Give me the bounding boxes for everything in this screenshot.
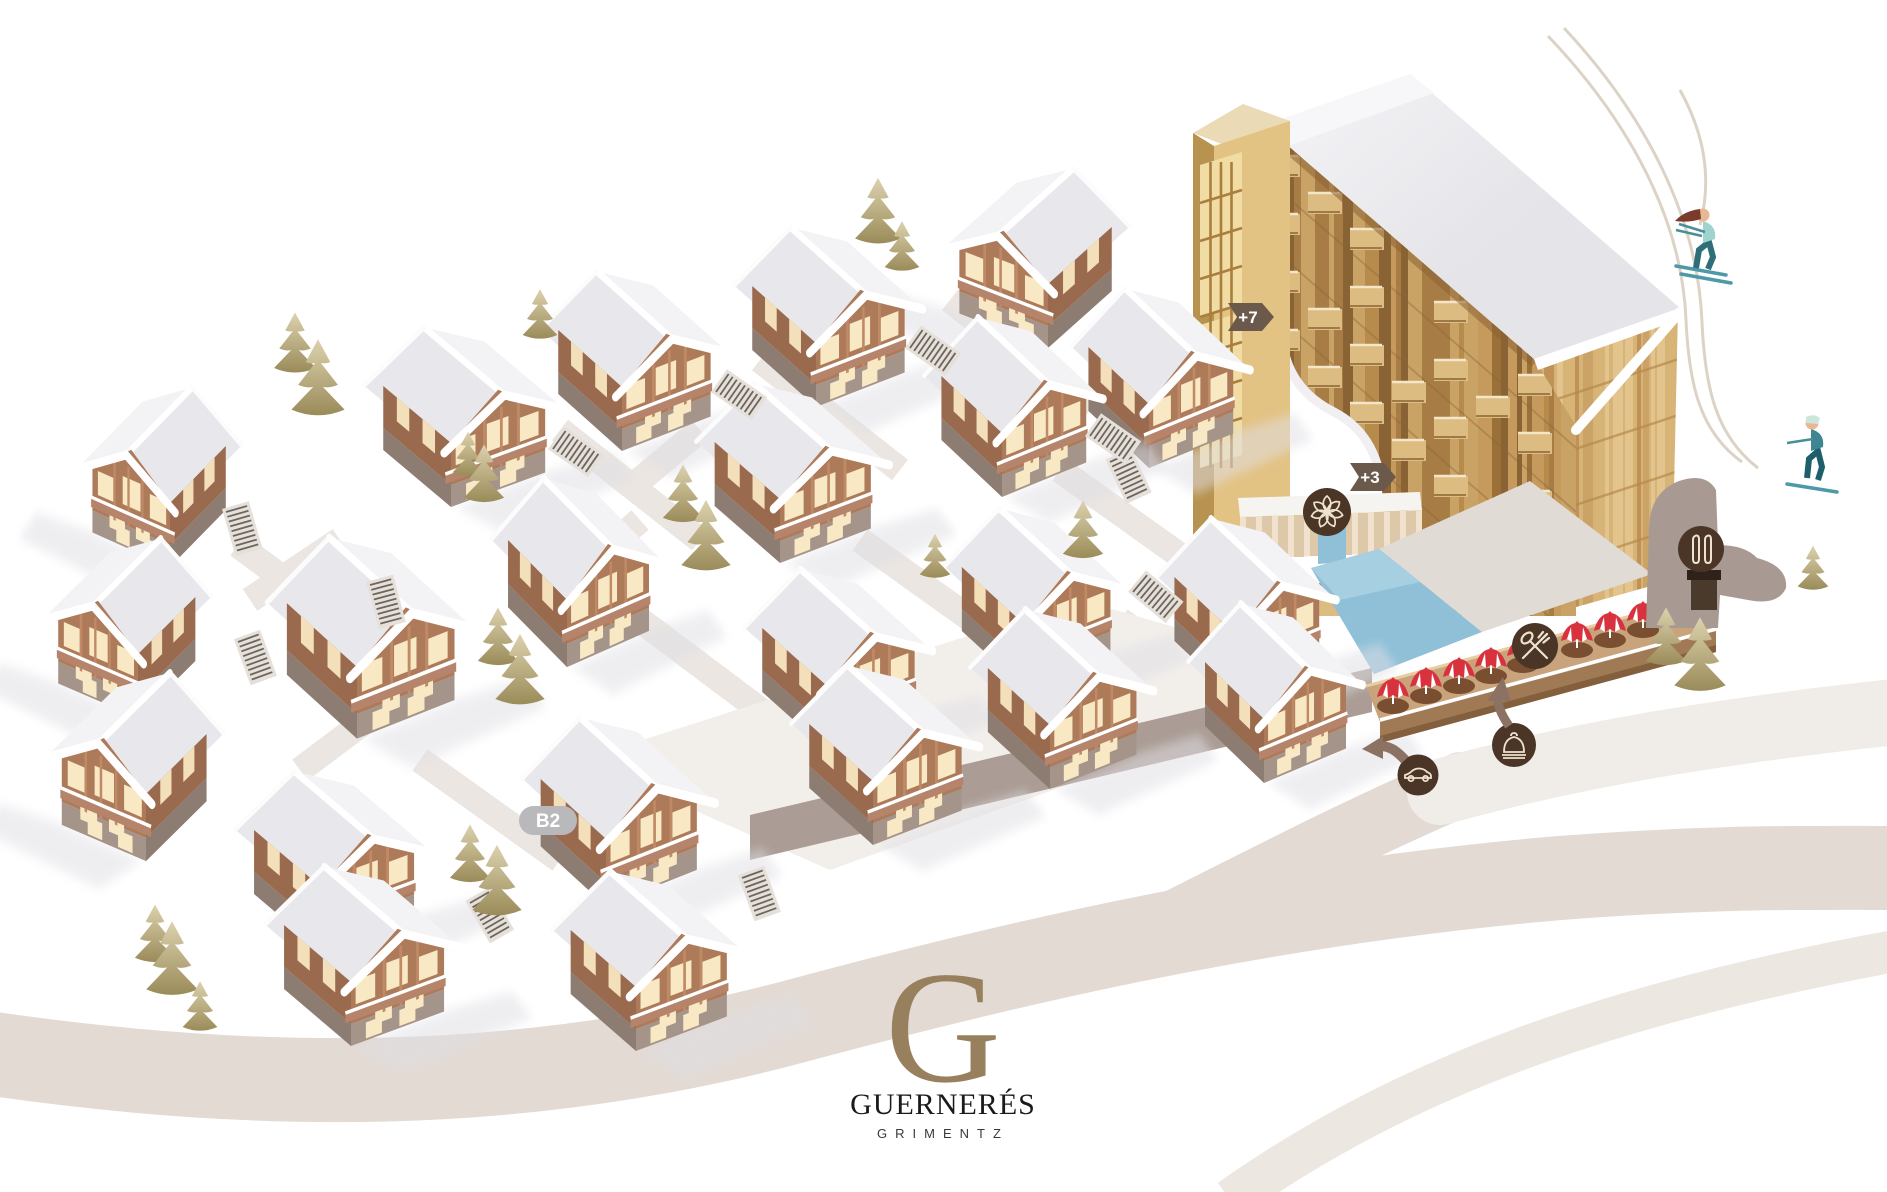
svg-text:GRIMENTZ: GRIMENTZ [877,1126,1009,1141]
svg-text:+7: +7 [1238,308,1257,327]
svg-text:GUERNERÉS: GUERNERÉS [850,1088,1036,1121]
svg-text:+3: +3 [1360,468,1379,487]
svg-text:B2: B2 [536,811,560,832]
